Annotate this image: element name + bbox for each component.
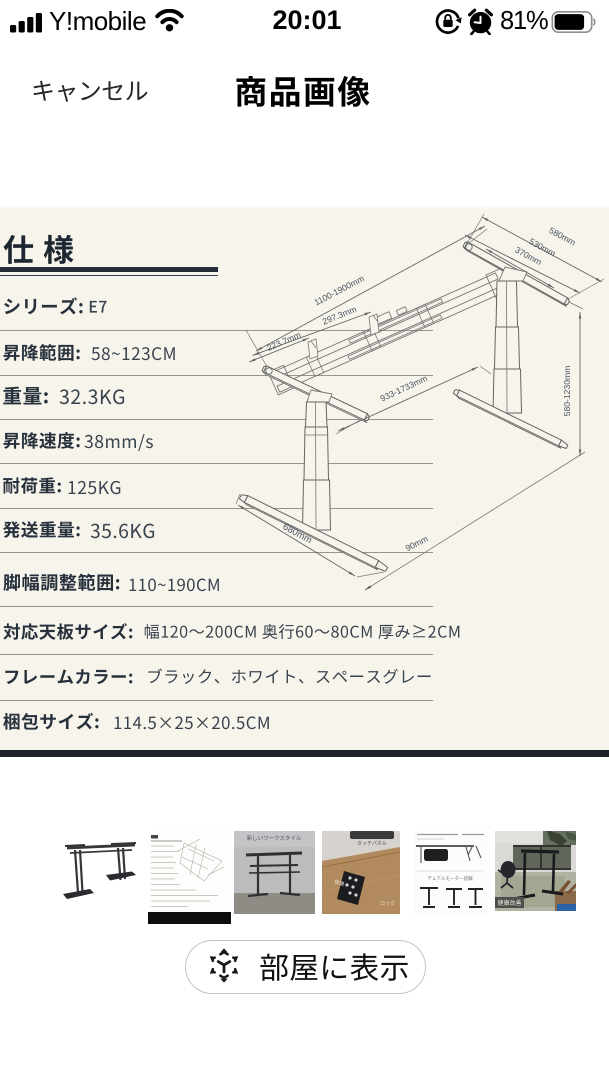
svg-text:580-1230mm: 580-1230mm	[562, 366, 572, 417]
svg-text:新しいワークスタイル: 新しいワークスタイル	[247, 834, 302, 842]
svg-text:223.7mm: 223.7mm	[265, 330, 302, 353]
svg-text:健康改善: 健康改善	[497, 899, 521, 907]
svg-text:1100-1900mm: 1100-1900mm	[313, 273, 366, 307]
svg-text:ロック: ロック	[380, 901, 395, 907]
svg-text:933-1733mm: 933-1733mm	[379, 373, 429, 403]
svg-text:580mm: 580mm	[547, 225, 577, 247]
svg-text:90mm: 90mm	[404, 533, 430, 553]
svg-text:タッチパネル: タッチパネル	[357, 840, 387, 847]
svg-text:デュアルモーター搭載: デュアルモーター搭載	[427, 875, 473, 882]
